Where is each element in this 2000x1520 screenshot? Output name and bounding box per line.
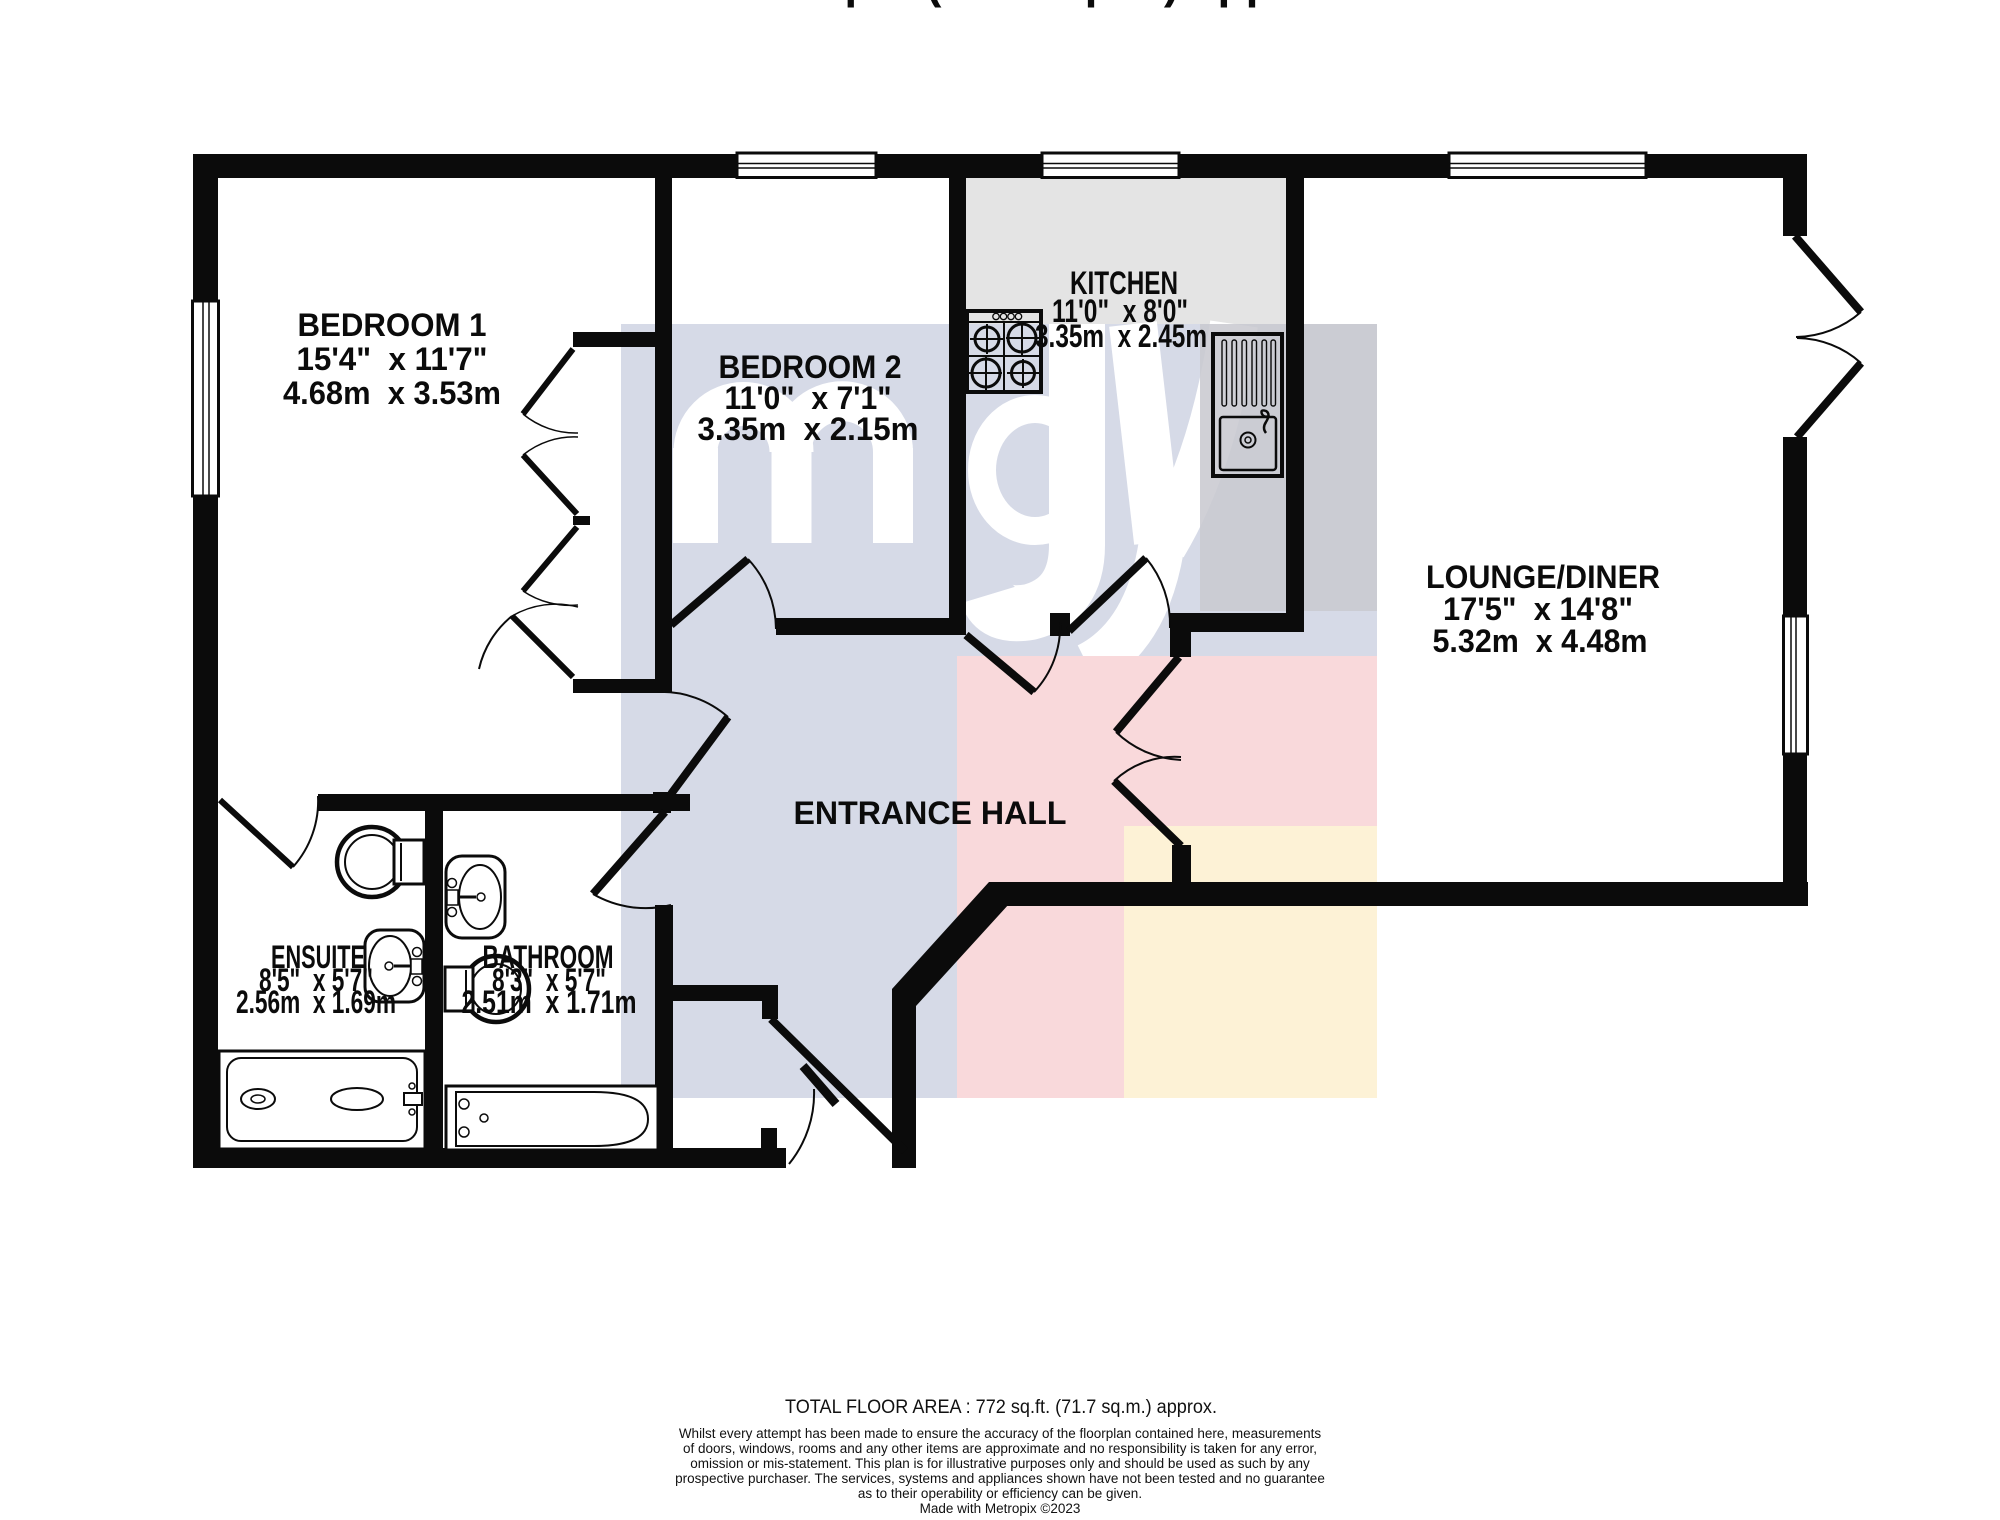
svg-text:omission or mis-statement. Thi: omission or mis-statement. This plan is … [690, 1456, 1310, 1471]
svg-text:4.68m x 3.53m: 4.68m x 3.53m [283, 375, 501, 411]
svg-text:of doors, windows, rooms and a: of doors, windows, rooms and any other i… [683, 1441, 1317, 1456]
svg-text:TOTAL FLOOR AREA : 772 sq.ft.: TOTAL FLOOR AREA : 772 sq.ft. (71.7 sq.m… [785, 1397, 1217, 1418]
svg-text:as to their operability or eff: as to their operability or efficiency ca… [858, 1486, 1142, 1501]
svg-text:2.51m x 1.71m: 2.51m x 1.71m [462, 984, 637, 1020]
svg-text:LOUNGE/DINER: LOUNGE/DINER [1426, 559, 1660, 595]
svg-text:772 sq.ft. (71.7 sq.m.) approx: 772 sq.ft. (71.7 sq.m.) approx. [714, 0, 1358, 8]
svg-text:Whilst every attempt has been: Whilst every attempt has been made to en… [679, 1426, 1322, 1441]
svg-text:5.32m x 4.48m: 5.32m x 4.48m [1433, 623, 1648, 659]
svg-text:BEDROOM 1: BEDROOM 1 [298, 307, 487, 343]
svg-text:2.56m x 1.69m: 2.56m x 1.69m [236, 984, 396, 1020]
svg-text:3.35m x 2.45m: 3.35m x 2.45m [1035, 318, 1207, 354]
svg-text:17'5" x 14'8": 17'5" x 14'8" [1443, 591, 1633, 627]
svg-text:ENTRANCE HALL: ENTRANCE HALL [794, 795, 1067, 831]
svg-text:15'4" x 11'7": 15'4" x 11'7" [297, 341, 488, 377]
svg-text:Made with Metropix ©2023: Made with Metropix ©2023 [920, 1501, 1081, 1516]
svg-text:3.35m x 2.15m: 3.35m x 2.15m [698, 411, 919, 447]
svg-text:prospective purchaser. The ser: prospective purchaser. The services, sys… [675, 1471, 1325, 1486]
